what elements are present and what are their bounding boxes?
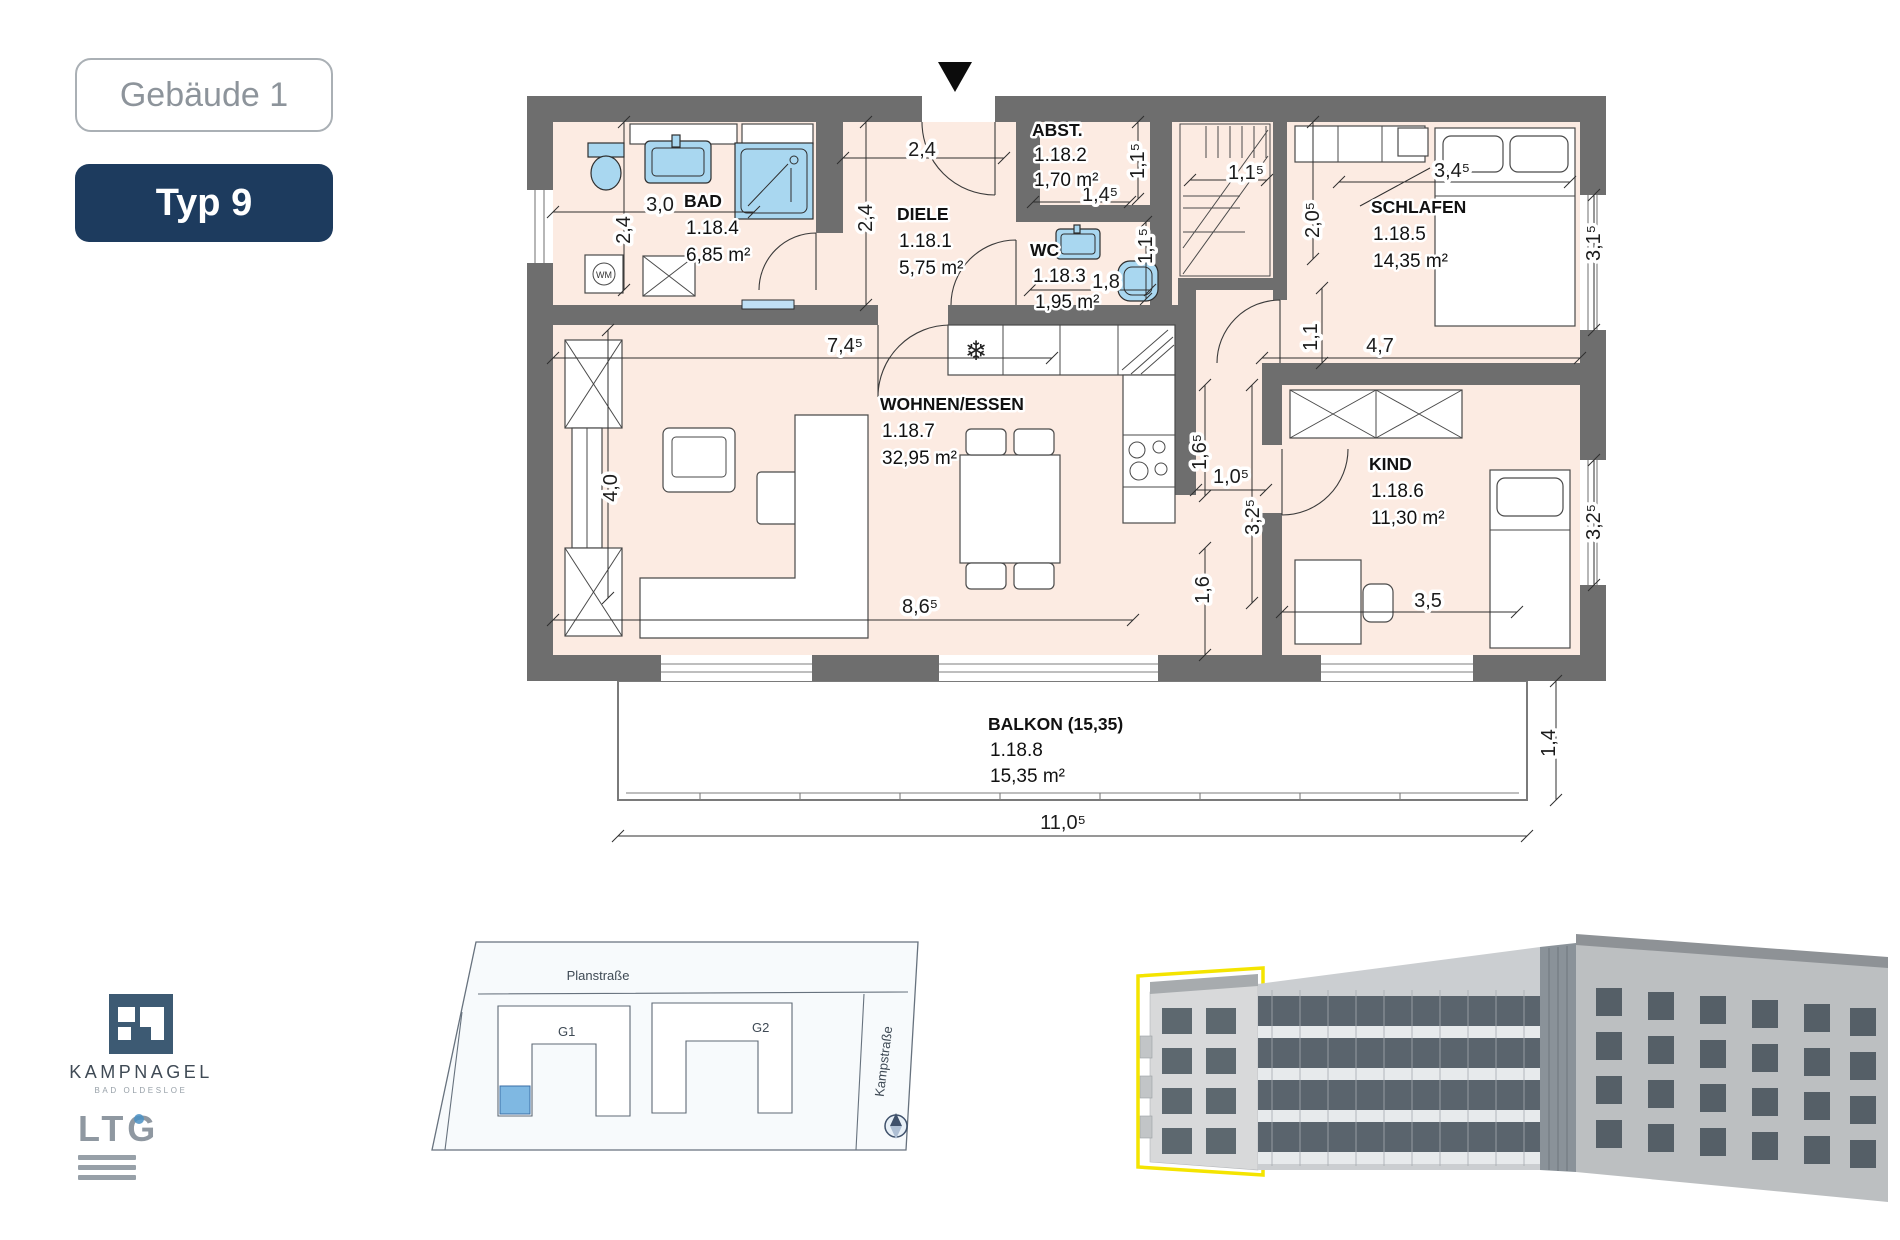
- building-label-g2: G2: [752, 1020, 769, 1035]
- ltg-logo-text: LTG: [78, 1108, 158, 1150]
- room-name-schlafen: SCHLAFEN: [1371, 197, 1466, 217]
- company-location: BAD OLDESLOE: [68, 1086, 214, 1095]
- room-number-schlafen: 1.18.5: [1373, 224, 1426, 245]
- room-name-wc: WC: [1030, 240, 1060, 260]
- dim-label: 3,5: [1414, 590, 1442, 612]
- ltg-logo-dot: [134, 1114, 144, 1124]
- dim-label: 1,1⁵: [1228, 162, 1264, 184]
- room-number-kind: 1.18.6: [1371, 481, 1424, 502]
- unit-type-badge[interactable]: Typ 9: [75, 164, 333, 242]
- room-area-abst: 1,70 m²: [1034, 170, 1098, 191]
- room-area-diele: 5,75 m²: [899, 258, 963, 279]
- room-name-balkon: BALKON (15,35): [988, 714, 1123, 734]
- company-name: KAMPNAGEL: [68, 1062, 214, 1083]
- page: Gebäude 1 Typ 9: [0, 0, 1900, 1240]
- room-name-wohnen: WOHNEN/ESSEN: [880, 394, 1024, 414]
- dim-label: 1,6⁵: [1189, 434, 1211, 470]
- unit-type-badge-label: Typ 9: [156, 182, 252, 225]
- chair: [966, 429, 1006, 455]
- dim-label: 3,1⁵: [1583, 225, 1605, 261]
- dim-label: 2,4: [855, 204, 877, 232]
- partner-name: LTG: [78, 1108, 159, 1149]
- dim-label: 1,0⁵: [1213, 466, 1249, 488]
- building-label-g1: G1: [558, 1024, 575, 1039]
- dim-label: 11,0⁵: [1040, 812, 1086, 834]
- dim-label: 4,0: [600, 474, 622, 502]
- dim-label: 3,2⁵: [1583, 504, 1605, 540]
- ltg-logo-bars: [78, 1155, 158, 1180]
- room-number-diele: 1.18.1: [899, 231, 952, 252]
- room-name-diele: DIELE: [897, 204, 949, 224]
- toilet: [588, 143, 624, 157]
- dim-label: 4,7: [1366, 335, 1394, 357]
- room-number-abst: 1.18.2: [1034, 145, 1087, 166]
- chair: [966, 563, 1006, 589]
- room-name-bad: BAD: [684, 191, 722, 211]
- site-plan: Planstraße Kampstraße G1 G2: [432, 942, 918, 1150]
- shower: [735, 143, 813, 219]
- dim-label: 3,2⁵: [1242, 499, 1264, 535]
- entrance-arrow-icon: [938, 62, 972, 92]
- nightstand: [1398, 128, 1428, 156]
- dim-label: 3,0: [646, 194, 674, 216]
- room-number-wc: 1.18.3: [1033, 266, 1086, 287]
- room-area-kind: 11,30 m²: [1371, 508, 1445, 529]
- dim-label: 1,1⁵: [1127, 143, 1149, 179]
- building-badge[interactable]: Gebäude 1: [75, 58, 333, 132]
- building-badge-label: Gebäude 1: [120, 76, 288, 115]
- kampnagel-logo-icon: [109, 994, 173, 1054]
- room-number-bad: 1.18.4: [686, 218, 739, 239]
- desk-chair: [1363, 584, 1393, 622]
- pillow: [1510, 136, 1568, 172]
- floor-plan: 3,0 2,4 2,4 2,4 1,4⁵ 1,1⁵ 1,8 1,1⁵ 1,1⁵ …: [527, 62, 1606, 842]
- sink-tap: [672, 135, 680, 147]
- dim-label: 7,4⁵: [827, 335, 863, 357]
- dim-label: 2,4: [613, 216, 635, 244]
- room-area-balkon: 15,35 m²: [990, 766, 1065, 787]
- room-number-wohnen: 1.18.7: [882, 421, 935, 442]
- washing-machine-label: WM: [596, 270, 612, 280]
- dim-label: 1,4: [1538, 729, 1560, 757]
- balcony-slab: [618, 681, 1527, 800]
- toilet-bowl: [591, 156, 621, 190]
- wc-tap: [1074, 225, 1080, 233]
- dim-label: 1,1: [1300, 323, 1322, 351]
- chair: [1014, 429, 1054, 455]
- dining-table: [960, 455, 1060, 563]
- room-area-wc: 1,95 m²: [1035, 292, 1099, 313]
- towel-radiator: [742, 300, 794, 309]
- kitchen-counter-side: [1123, 375, 1175, 523]
- desk: [1295, 560, 1361, 644]
- room-number-balkon: 1.18.8: [990, 740, 1043, 761]
- street-label-planstrasse: Planstraße: [567, 968, 630, 983]
- dim-label: 8,6⁵: [902, 596, 938, 618]
- fridge-icon: ❄: [965, 336, 988, 366]
- unit-location-marker: [500, 1086, 530, 1114]
- dim-label: 2,4: [908, 139, 936, 161]
- dim-label: 1,1⁵: [1135, 228, 1157, 264]
- dim-label: 2,0⁵: [1302, 202, 1324, 238]
- kampnagel-logo: KAMPNAGEL BAD OLDESLOE: [68, 994, 214, 1095]
- dim-label: 1,6: [1192, 576, 1214, 604]
- dim-label: 3,4⁵: [1434, 160, 1470, 182]
- room-area-schlafen: 14,35 m²: [1373, 251, 1448, 272]
- building-photo: [1138, 934, 1888, 1202]
- dim-label: 1,8: [1092, 271, 1120, 293]
- pillow: [1497, 478, 1563, 516]
- chair: [1014, 563, 1054, 589]
- room-name-abst: ABST.: [1032, 120, 1083, 140]
- room-area-wohnen: 32,95 m²: [882, 448, 957, 469]
- ltg-logo: LTG: [78, 1108, 158, 1180]
- room-name-kind: KIND: [1369, 454, 1412, 474]
- room-area-bad: 6,85 m²: [686, 245, 750, 266]
